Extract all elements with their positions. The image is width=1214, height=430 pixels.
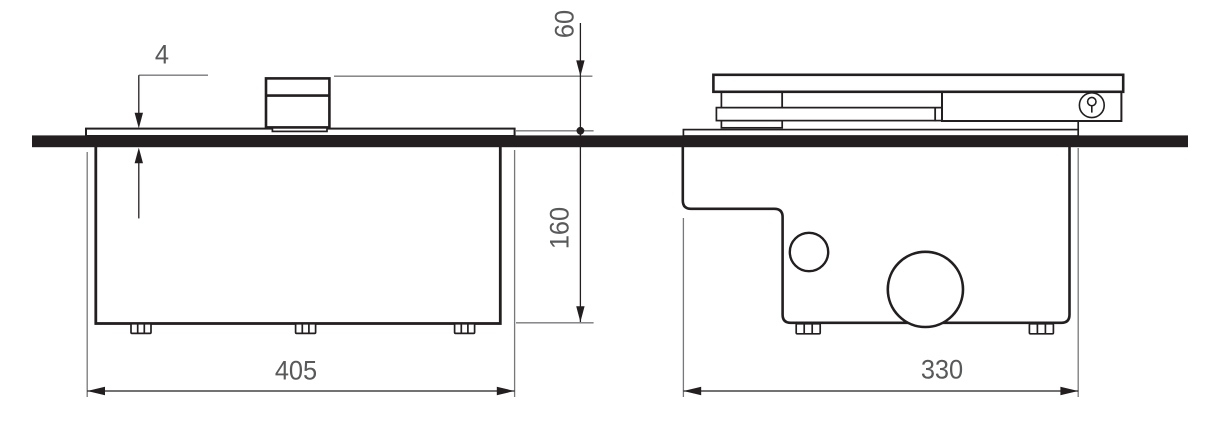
knockout-large-circle <box>888 252 963 327</box>
side-view-body <box>683 139 1070 327</box>
dim-60-arrow <box>576 60 584 76</box>
lid-mid-frame <box>782 92 942 108</box>
side-foot-left <box>796 324 820 334</box>
side-cabinet-profile <box>683 139 1070 323</box>
dim-405-arrow-left <box>87 387 105 395</box>
side-view-lid <box>683 75 1123 136</box>
dim-160-arrow <box>576 306 584 322</box>
side-recessed-cover-plate <box>683 130 1078 136</box>
dim-label-depth: 160 <box>545 207 576 249</box>
lid-lower-spacer <box>721 121 782 128</box>
outlet-box <box>266 78 329 127</box>
dim-label-outlet-height: 60 <box>550 10 581 38</box>
dim-405-arrow-right <box>497 387 515 395</box>
drawing-linework <box>0 0 1214 430</box>
dim-label-front-width: 405 <box>275 356 317 387</box>
lid-slide-bar <box>716 108 935 121</box>
knockout-small-circle <box>790 233 828 271</box>
floor-line <box>32 135 1188 147</box>
lid-hinge-block <box>721 92 782 108</box>
dim-330-arrow-left <box>683 387 701 395</box>
dim-label-plate-protrusion: 4 <box>155 40 169 71</box>
front-cabinet-body <box>96 139 501 324</box>
lid-top-plate <box>713 75 1123 92</box>
front-foot-center <box>296 324 316 334</box>
front-view-top <box>86 78 515 136</box>
keyhole-icon <box>1079 93 1104 118</box>
side-foot-right <box>1029 324 1053 334</box>
dim-label-side-width: 330 <box>921 355 963 386</box>
dim-4-arrow-down <box>135 113 143 129</box>
front-view-body <box>96 139 501 324</box>
dim-330-arrow-right <box>1060 387 1078 395</box>
front-foot-right <box>455 324 475 334</box>
technical-drawing-canvas: 4 60 160 405 330 <box>0 0 1214 430</box>
front-foot-left <box>131 324 151 334</box>
